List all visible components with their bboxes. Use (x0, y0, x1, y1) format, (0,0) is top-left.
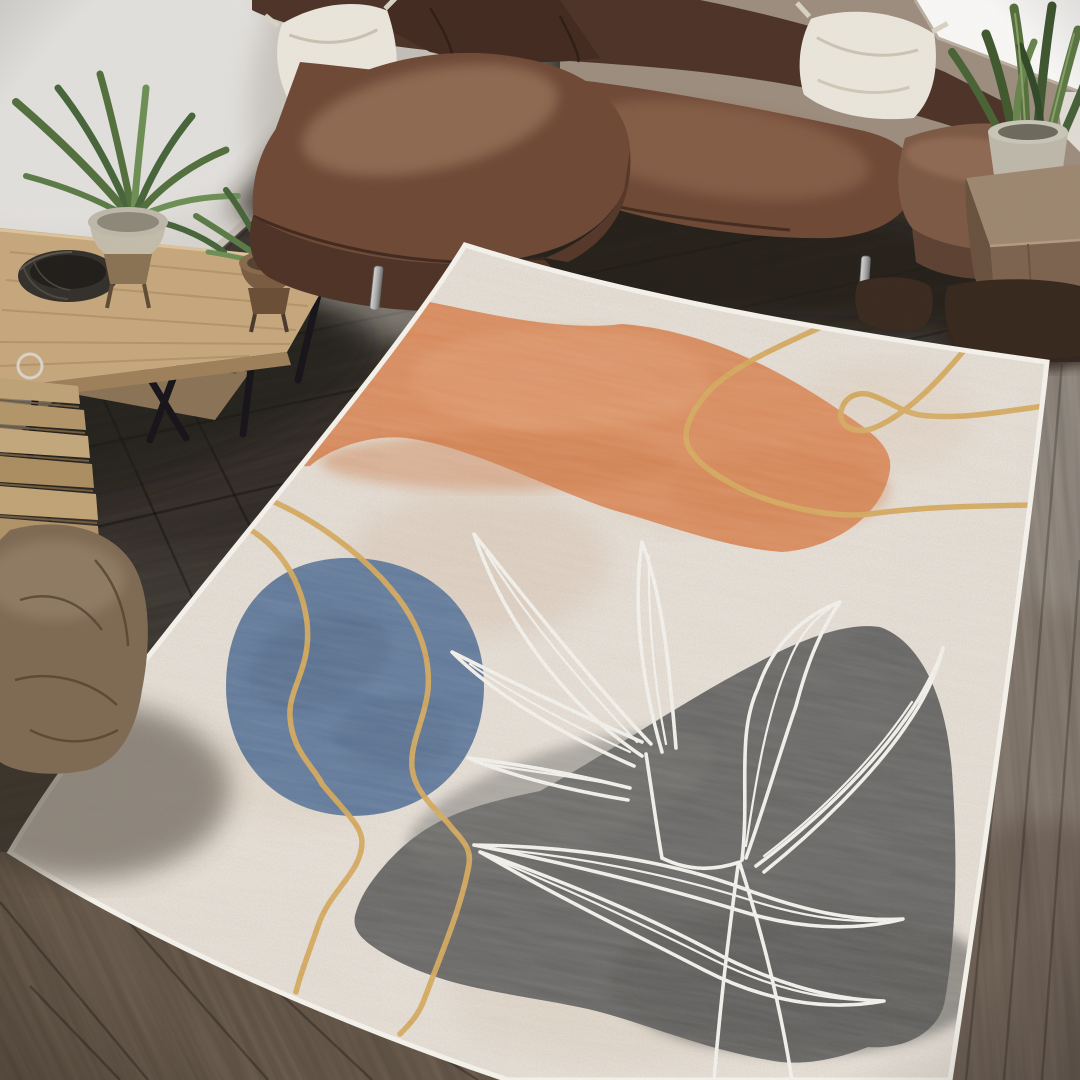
living-room-photo (0, 0, 1080, 1080)
vignette (0, 0, 1080, 1080)
scene-canvas (0, 0, 1080, 1080)
